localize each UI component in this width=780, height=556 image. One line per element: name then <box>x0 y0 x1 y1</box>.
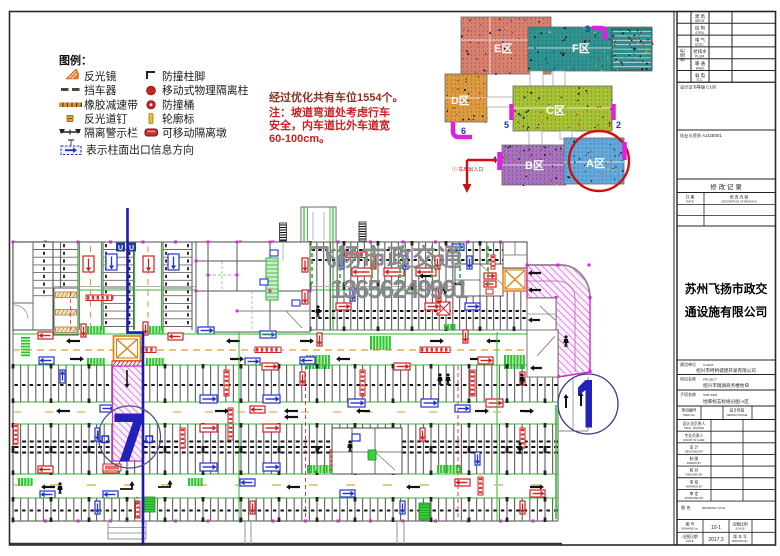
svg-text:会签栏: 会签栏 <box>679 48 686 62</box>
svg-text:版 本 号: 版 本 号 <box>733 534 747 539</box>
svg-text:苏州飞扬市政交: 苏州飞扬市政交 <box>685 282 768 296</box>
svg-text:10-1: 10-1 <box>711 525 721 531</box>
svg-text:PROJ. MASTER: PROJ. MASTER <box>684 426 704 430</box>
svg-text:专业负责人: 专业负责人 <box>685 433 704 438</box>
svg-text:反光道钉: 反光道钉 <box>84 112 127 126</box>
svg-text:安全，内车道比外车道宽: 安全，内车道比外车道宽 <box>269 118 390 132</box>
svg-text:D区: D区 <box>451 95 470 107</box>
svg-text:3: 3 <box>585 24 590 34</box>
svg-text:VERSION No.: VERSION No. <box>732 539 749 543</box>
svg-text:建设单位: 建设单位 <box>680 361 696 367</box>
svg-text:VERIFIED BY: VERIFIED BY <box>686 484 703 488</box>
svg-text:反光镜: 反光镜 <box>84 69 117 83</box>
svg-text:执业与资质 A142E001: 执业与资质 A142E001 <box>680 132 722 139</box>
svg-text:DISCIP. IN CHIEF: DISCIP. IN CHIEF <box>683 438 705 442</box>
svg-text:U: U <box>129 245 134 252</box>
svg-text:设计阶段: 设计阶段 <box>729 408 744 413</box>
svg-text:STRU.: STRU. <box>695 31 705 35</box>
svg-text:C区: C区 <box>546 104 565 117</box>
svg-text:修 改 记 录: 修 改 记 录 <box>710 182 742 191</box>
svg-text:DRAWING TITLE: DRAWING TITLE <box>702 506 725 510</box>
svg-text:防撞桶: 防撞桶 <box>162 98 194 112</box>
svg-text:表示柱面出口信息方向: 表示柱面出口信息方向 <box>86 143 194 157</box>
svg-text:设计总负责人: 设计总负责人 <box>683 421 706 426</box>
svg-text:A区: A区 <box>586 157 605 170</box>
svg-text:HVAC: HVAC <box>696 66 705 70</box>
svg-text:地库标志标线分图-A区: 地库标志标线分图-A区 <box>703 398 749 405</box>
svg-text:隔离警示栏: 隔离警示栏 <box>84 126 138 140</box>
svg-text:移动式物理隔离柱: 移动式物理隔离柱 <box>162 83 249 97</box>
svg-text:经过优化共有车位1554个。: 经过优化共有车位1554个。 <box>269 90 403 104</box>
svg-text:绍兴市镜湖商务楼地块: 绍兴市镜湖商务楼地块 <box>703 382 749 389</box>
svg-text:制 图: 制 图 <box>690 456 699 461</box>
svg-text:项目名称: 项目名称 <box>680 376 696 382</box>
svg-text:橡胶减速带: 橡胶减速带 <box>84 98 138 112</box>
svg-text:DATE: DATE <box>686 539 693 543</box>
svg-text:注：坡道弯道处考虑行车: 注：坡道弯道处考虑行车 <box>269 105 390 119</box>
svg-text:F区: F区 <box>572 42 590 55</box>
svg-text:DATE: DATE <box>686 199 694 203</box>
svg-text:① 车库出入口: ① 车库出入口 <box>452 166 483 173</box>
svg-text:可移动隔离墩: 可移动隔离墩 <box>162 126 227 140</box>
svg-text:E区: E区 <box>494 42 512 55</box>
svg-text:设计证书等级 C100: 设计证书等级 C100 <box>680 84 717 91</box>
svg-text:图 名: 图 名 <box>681 504 691 511</box>
svg-text:APPROVED BY: APPROVED BY <box>684 496 703 500</box>
svg-text:B区: B区 <box>525 159 544 172</box>
svg-text:设 计: 设 计 <box>690 444 699 449</box>
svg-text:轮廓标: 轮廓标 <box>162 112 195 126</box>
svg-text:修 改 内 容: 修 改 内 容 <box>730 195 749 200</box>
svg-text:2: 2 <box>616 120 621 130</box>
svg-text:5: 5 <box>504 120 509 130</box>
svg-text:SCALE: SCALE <box>735 527 744 531</box>
svg-text:图 号: 图 号 <box>686 522 695 527</box>
svg-text:U: U <box>118 245 123 252</box>
svg-text:ITEM No.: ITEM No. <box>683 413 696 417</box>
svg-text:校 对: 校 对 <box>690 468 699 473</box>
svg-text:飞扬市政交通: 飞扬市政交通 <box>312 243 462 272</box>
svg-text:6: 6 <box>461 126 466 136</box>
svg-text:图例：: 图例： <box>59 53 92 67</box>
svg-text:DESIGNED BY: DESIGNED BY <box>685 449 704 453</box>
svg-text:CHECKED BY: CHECKED BY <box>685 473 703 477</box>
svg-text:审 核: 审 核 <box>690 479 699 484</box>
svg-text:DESCRIPTION OF REVISION: DESCRIPTION OF REVISION <box>721 199 756 203</box>
svg-text:13656249991: 13656249991 <box>330 274 469 304</box>
svg-text:防撞柱脚: 防撞柱脚 <box>162 69 205 83</box>
svg-text:挡车器: 挡车器 <box>84 83 117 97</box>
svg-text:绍兴市柯桥城建开发有限公司: 绍兴市柯桥城建开发有限公司 <box>696 367 756 374</box>
svg-text:通设施有限公司: 通设施有限公司 <box>685 305 768 319</box>
svg-text:ELEC.: ELEC. <box>695 43 704 47</box>
svg-text:ARCH.: ARCH. <box>695 19 705 23</box>
svg-text:DESIGN STAGE: DESIGN STAGE <box>727 413 748 417</box>
svg-text:P2-2: P2-2 <box>135 496 140 505</box>
svg-text:电 气: 电 气 <box>695 36 706 42</box>
svg-text:2017.3: 2017.3 <box>708 537 724 543</box>
svg-text:E.C.: E.C. <box>697 78 703 82</box>
svg-text:60-100cm。: 60-100cm。 <box>269 133 330 145</box>
svg-text:PLUM.: PLUM. <box>695 55 705 59</box>
svg-text:SUB ITEM: SUB ITEM <box>703 393 718 397</box>
svg-text:子项名称: 子项名称 <box>680 391 696 397</box>
svg-text:PROJECT: PROJECT <box>703 378 717 382</box>
svg-text:项目编号: 项目编号 <box>681 408 696 413</box>
svg-text:审 定: 审 定 <box>690 491 699 496</box>
svg-text:CLIENT: CLIENT <box>703 363 714 367</box>
svg-text:DRAWING No.: DRAWING No. <box>681 527 698 531</box>
svg-text:DRAWN BY: DRAWN BY <box>687 461 702 465</box>
svg-text:0: 0 <box>572 67 575 73</box>
